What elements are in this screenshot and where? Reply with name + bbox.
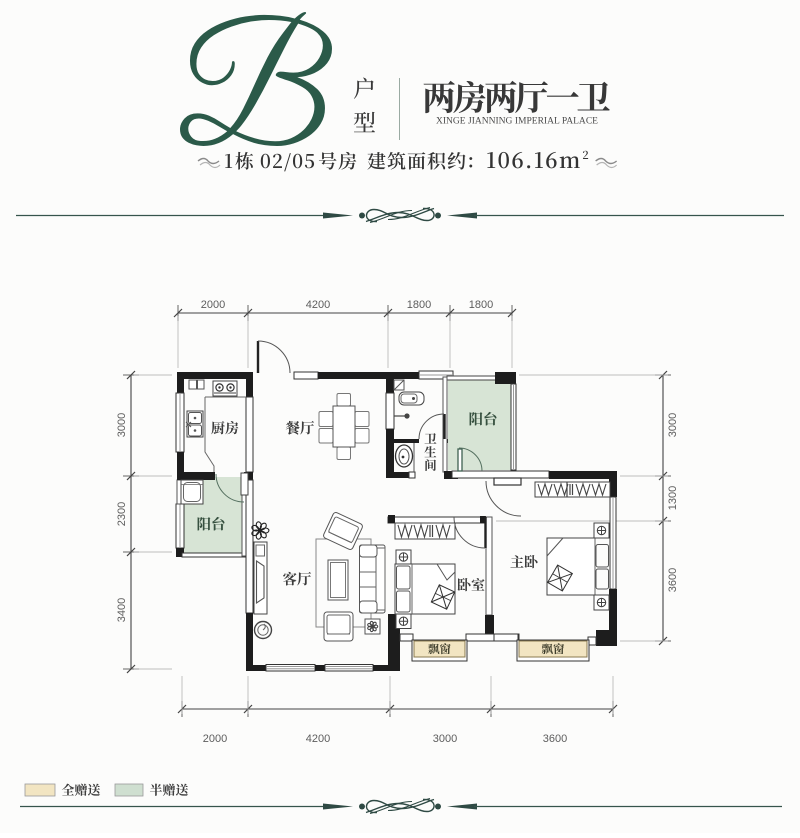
svg-text:3600: 3600 [543,733,567,745]
svg-text:3000: 3000 [667,413,679,437]
svg-text:3400: 3400 [116,598,128,622]
svg-text:3000: 3000 [433,733,457,745]
svg-text:2000: 2000 [203,733,227,745]
svg-text:4200: 4200 [306,733,330,745]
svg-text:1800: 1800 [407,299,431,311]
svg-text:2000: 2000 [201,299,225,311]
svg-text:1800: 1800 [469,299,493,311]
svg-text:XINGE JIANNING IMPERIAL PALACE: XINGE JIANNING IMPERIAL PALACE [436,116,599,126]
svg-text:3600: 3600 [667,568,679,592]
svg-text:2300: 2300 [116,502,128,526]
svg-text:1300: 1300 [667,486,679,510]
svg-text:3000: 3000 [116,413,128,437]
svg-text:4200: 4200 [306,299,330,311]
